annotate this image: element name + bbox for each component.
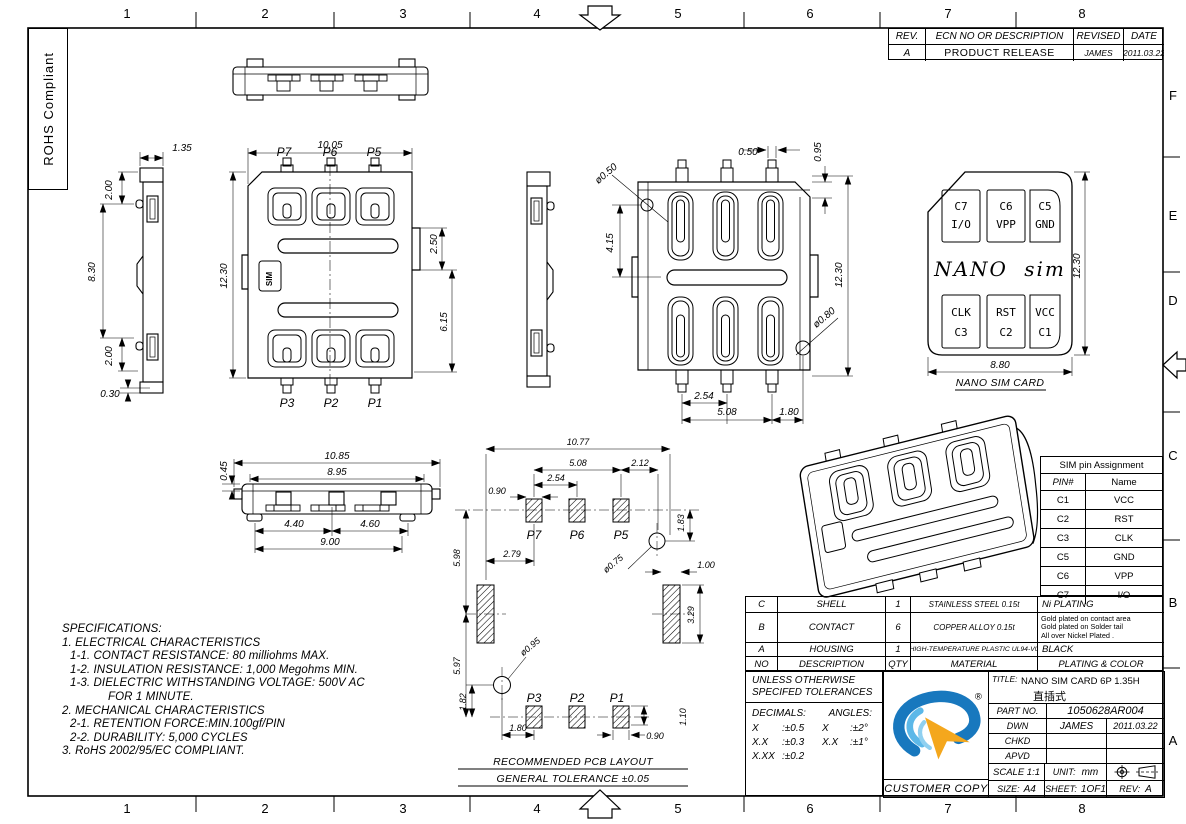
dim-pcb-2-54: 2.54 — [546, 473, 565, 483]
pin-label-p7: P7 — [277, 145, 293, 159]
sheet-value: 1OF1 — [1081, 784, 1106, 795]
dim-5-98: 5.98 — [452, 549, 462, 567]
dim-12-30-left: 12.30 — [219, 263, 230, 288]
dim-0-30: 0.30 — [100, 389, 120, 400]
dim-dia-0-95: ø0.95 — [518, 635, 543, 658]
pad-c6-name: VPP — [996, 218, 1016, 231]
zone-bot-1: 1 — [117, 801, 137, 816]
pin-c5: C5 — [1041, 548, 1086, 566]
dim-3-29: 3.29 — [686, 606, 696, 624]
pin-label-p3: P3 — [280, 396, 295, 410]
tolerance-row-2: X.X:±0.3 X.X:±1° — [746, 735, 882, 749]
dim-0-95: 0.95 — [813, 142, 824, 162]
pin-col-header: PIN# — [1041, 474, 1086, 490]
rohs-compliant-box: ROHS Compliant — [28, 28, 68, 190]
title-label: TITLE: — [992, 674, 1018, 684]
pad-c1: C1 — [1038, 326, 1051, 339]
dim-dia-0-80: ø0.80 — [811, 305, 838, 330]
pad-c5: C5 — [1038, 200, 1051, 213]
zone-letter-e: E — [1165, 208, 1181, 223]
pad-c3: C3 — [954, 326, 967, 339]
tolerance-block: UNLESS OTHERWISE SPECIFED TOLERANCES DEC… — [745, 671, 883, 796]
dim-10-77: 10.77 — [567, 437, 591, 447]
dim-dia-0-75: ø0.75 — [601, 552, 626, 575]
bom-header-material: MATERIAL — [911, 657, 1038, 672]
bom-c-plating: Ni PLATING — [1038, 597, 1164, 613]
sim-pin-assignment-table: SIM pin Assignment PIN# Name C1 VCC C2 R… — [1040, 456, 1163, 596]
pin-row-c2: C2 RST — [1041, 510, 1162, 529]
bom-header-desc: DESCRIPTION — [778, 657, 886, 672]
date-col-header: DATE — [1124, 29, 1164, 45]
sim-marking: SIM — [265, 272, 274, 287]
spec-line: 1-1. CONTACT RESISTANCE: 80 milliohms MA… — [62, 650, 462, 664]
zone-top-3: 3 — [393, 6, 413, 21]
specifications-block: SPECIFICATIONS: 1. ELECTRICAL CHARACTERI… — [62, 623, 462, 759]
pin-c3: C3 — [1041, 529, 1086, 547]
view-front — [234, 484, 440, 521]
dim-pcb-0-90a: 0.90 — [488, 486, 506, 496]
bom-a-desc: HOUSING — [778, 643, 886, 657]
bom-c-material: STAINLESS STEEL 0.15t — [911, 597, 1038, 613]
pcb-pad-p1: P1 — [610, 691, 625, 705]
pad-c5-name: GND — [1035, 218, 1055, 231]
pin-c1-name: VCC — [1086, 491, 1162, 509]
unit-cell: UNIT: mm — [1044, 763, 1107, 781]
right-edge-arrow-icon — [1163, 352, 1186, 378]
rev-cell: REV: A — [1106, 780, 1165, 798]
dim-4-40: 4.40 — [284, 519, 304, 530]
zone-top-8: 8 — [1072, 6, 1092, 21]
rev-value: A — [889, 45, 926, 61]
part-no-label: PART NO. — [988, 703, 1047, 719]
bom-a-qty: 1 — [886, 643, 911, 657]
dim-pcb-5-08: 5.08 — [569, 458, 587, 468]
zone-letter-d: D — [1165, 293, 1181, 308]
spec-line: 1-3. DIELECTRIC WITHSTANDING VOLTAGE: 50… — [62, 677, 462, 691]
dwn-date: 2011.03.22 — [1106, 718, 1165, 734]
pin-c6-name: VPP — [1086, 567, 1162, 585]
zone-letter-c: C — [1165, 448, 1181, 463]
pin-row-c1: C1 VCC — [1041, 491, 1162, 510]
title-block: ® CUSTOMER COPY TITLE: NANO SIM CARD 6P … — [883, 671, 1163, 796]
pin-c2: C2 — [1041, 510, 1086, 528]
revised-col-header: REVISED — [1074, 29, 1124, 45]
title-cell: TITLE: NANO SIM CARD 6P 1.35H 直插式 — [988, 671, 1165, 704]
dim-2-00-top: 2.00 — [104, 180, 115, 201]
pcb-pad-p2: P2 — [570, 691, 585, 705]
zone-bot-4: 4 — [527, 801, 547, 816]
view-side-left — [136, 168, 163, 393]
spec-line: 1. ELECTRICAL CHARACTERISTICS — [62, 637, 462, 651]
pin-table-title: SIM pin Assignment — [1041, 457, 1162, 474]
view-top-profile — [233, 59, 428, 100]
rev-description: PRODUCT RELEASE — [926, 45, 1074, 61]
pin-c2-name: RST — [1086, 510, 1162, 528]
bom-c-no: C — [746, 597, 778, 613]
dim-card-8-80: 8.80 — [990, 360, 1010, 371]
tolerance-title-2: SPECIFED TOLERANCES — [752, 687, 882, 699]
dim-pcb-1-80: 1.80 — [509, 723, 527, 733]
pin-label-p1: P1 — [368, 396, 383, 410]
dim-4-60: 4.60 — [360, 519, 380, 530]
rev-label: REV: — [1119, 784, 1140, 794]
pin-c6: C6 — [1041, 567, 1086, 585]
dim-5-08: 5.08 — [717, 407, 737, 418]
pin-row-c5: C5 GND — [1041, 548, 1162, 567]
bom-c-qty: 1 — [886, 597, 911, 613]
bom-c-desc: SHELL — [778, 597, 886, 613]
rev-revised-by: JAMES — [1074, 45, 1124, 61]
top-center-arrow-icon — [580, 6, 620, 30]
bom-b-material: COPPER ALLOY 0.15t — [911, 613, 1038, 643]
dim-1-80: 1.80 — [779, 407, 799, 418]
scale-cell: SCALE 1:1 — [988, 763, 1045, 781]
pad-c1-name: VCC — [1035, 306, 1055, 319]
customer-copy-cell: CUSTOMER COPY — [883, 779, 989, 798]
name-col-header: Name — [1086, 474, 1162, 490]
logo-cell: ® — [883, 671, 989, 780]
decimals-label: DECIMALS: — [752, 708, 806, 719]
rev-col-header: REV. — [889, 29, 926, 45]
drawing-title: NANO SIM CARD 6P 1.35H — [1021, 676, 1140, 687]
pin-label-p2: P2 — [324, 396, 339, 410]
zone-top-4: 4 — [527, 6, 547, 21]
zone-letter-b: B — [1165, 595, 1181, 610]
rev-date: 2011.03.22 — [1124, 45, 1164, 61]
pcb-caption-2: GENERAL TOLERANCE ±0.05 — [497, 773, 650, 785]
size-label: SIZE: — [997, 784, 1020, 794]
bom-b-plating-3: All over Nickel Plated . — [1041, 632, 1114, 641]
tolerance-row-1: X:±0.5 X:±2° — [746, 721, 882, 735]
bom-header-no: NO — [746, 657, 778, 672]
view-top-main-dims: P7 P6 P5 P3 P2 P1 SIM 10.05 12.30 2.50 6… — [219, 140, 457, 410]
zone-top-5: 5 — [668, 6, 688, 21]
nano-sim-brand: NANO sim — [933, 257, 1066, 281]
projection-cell — [1106, 763, 1165, 781]
pin-c1: C1 — [1041, 491, 1086, 509]
pcb-caption-1: RECOMMENDED PCB LAYOUT — [493, 756, 654, 768]
bom-a-no: A — [746, 643, 778, 657]
pin-row-c6: C6 VPP — [1041, 567, 1162, 586]
dim-8-30: 8.30 — [87, 262, 98, 282]
dwn-label: DWN — [988, 718, 1047, 734]
dim-8-95: 8.95 — [327, 467, 347, 478]
view-back — [612, 160, 838, 392]
zone-bot-3: 3 — [393, 801, 413, 816]
dim-12-30-right: 12.30 — [834, 262, 845, 287]
bom-b-plating: Gold plated on contact area Gold plated … — [1038, 613, 1164, 643]
pad-c2-name: RST — [996, 306, 1016, 319]
tolerance-row-3: X.XX:±0.2 — [746, 749, 882, 763]
dwn-value: JAMES — [1046, 718, 1107, 734]
zone-top-6: 6 — [800, 6, 820, 21]
dim-9-00: 9.00 — [320, 537, 340, 548]
apvd-date — [1106, 748, 1165, 764]
dim-2-54: 2.54 — [693, 391, 714, 402]
chkd-value — [1046, 733, 1107, 749]
bom-a-plating: BLACK — [1038, 643, 1164, 657]
dim-pcb-0-90b: 0.90 — [646, 731, 664, 741]
dim-card-12-30: 12.30 — [1072, 253, 1083, 278]
pcb-pad-p6: P6 — [570, 528, 585, 542]
size-value: A4 — [1024, 784, 1036, 795]
spec-line: 1-2. INSULATION RESISTANCE: 1,000 Megohm… — [62, 664, 462, 678]
pin-row-c3: C3 CLK — [1041, 529, 1162, 548]
bom-b-no: B — [746, 613, 778, 643]
company-logo-icon: ® — [886, 683, 986, 769]
sheet-label: SHEET: — [1045, 784, 1077, 794]
projection-symbol-icon — [1113, 765, 1159, 779]
tolerance-title-1: UNLESS OTHERWISE — [752, 675, 882, 687]
dim-1-35: 1.35 — [172, 143, 192, 154]
bom-header-qty: QTY — [886, 657, 911, 672]
pcb-pad-p5: P5 — [614, 528, 629, 542]
dim-10-85: 10.85 — [324, 451, 349, 462]
zone-letter-a: A — [1165, 733, 1181, 748]
zone-letter-f: F — [1165, 88, 1181, 103]
pad-c7-name: I/O — [951, 218, 971, 231]
ecn-col-header: ECN NO OR DESCRIPTION — [926, 29, 1074, 45]
dim-4-15: 4.15 — [605, 233, 616, 253]
unit-label: UNIT: — [1053, 767, 1076, 777]
specs-title: SPECIFICATIONS: — [62, 623, 462, 637]
pin-c5-name: GND — [1086, 548, 1162, 566]
zone-bot-5: 5 — [668, 801, 688, 816]
chkd-date — [1106, 733, 1165, 749]
pad-c6: C6 — [999, 200, 1012, 213]
part-no-value: 1050628AR004 — [1046, 703, 1165, 719]
dim-2-12: 2.12 — [630, 458, 649, 468]
angles-label: ANGLES: — [829, 708, 872, 719]
dim-2-79: 2.79 — [502, 549, 521, 559]
nano-card-caption: NANO SIM CARD — [956, 377, 1045, 389]
bottom-center-arrow-icon — [580, 790, 620, 818]
rev-value-tb: A — [1145, 784, 1152, 795]
apvd-label: APVD — [988, 748, 1047, 764]
view-pcb-layout: 10.77 5.08 2.12 2.54 0.90 2.79 5.98 5.97… — [452, 437, 715, 786]
view-isometric — [798, 404, 1047, 607]
pcb-pad-p7: P7 — [527, 528, 543, 542]
spec-line: FOR 1 MINUTE. — [62, 691, 462, 705]
dim-1-10: 1.10 — [678, 708, 688, 726]
pin-label-p5: P5 — [367, 145, 382, 159]
dim-6-15: 6.15 — [439, 312, 450, 332]
revision-table: REV. ECN NO OR DESCRIPTION REVISED DATE … — [888, 28, 1163, 60]
sheet-cell: SHEET: 1OF1 — [1044, 780, 1107, 798]
spec-line: 2. MECHANICAL CHARACTERISTICS — [62, 705, 462, 719]
pad-c3-name: CLK — [951, 306, 971, 319]
dim-2-50: 2.50 — [429, 234, 440, 255]
bom-header-plating: PLATING & COLOR — [1038, 657, 1164, 672]
zone-bot-7: 7 — [938, 801, 958, 816]
bom-b-desc: CONTACT — [778, 613, 886, 643]
zone-top-7: 7 — [938, 6, 958, 21]
bom-b-qty: 6 — [886, 613, 911, 643]
chkd-label: CHKD — [988, 733, 1047, 749]
zone-top-2: 2 — [255, 6, 275, 21]
spec-line: 2-2. DURABILITY: 5,000 CYCLES — [62, 732, 462, 746]
dim-1-00: 1.00 — [697, 560, 715, 570]
zone-bot-6: 6 — [800, 801, 820, 816]
bom-a-material: HIGH-TEMPERATURE PLASTIC UL94-V0 — [911, 643, 1038, 657]
view-nano-card-text: C7 I/O C6 VPP C5 GND CLK C3 RST C2 VCC C… — [928, 172, 1090, 390]
zone-top-1: 1 — [117, 6, 137, 21]
dim-0-45: 0.45 — [219, 461, 230, 481]
pad-c2: C2 — [999, 326, 1012, 339]
spec-line: 2-1. RETENTION FORCE:MIN.100gf/PIN — [62, 718, 462, 732]
registered-mark: ® — [975, 691, 982, 702]
view-side-middle — [527, 172, 554, 387]
zone-bot-2: 2 — [255, 801, 275, 816]
size-cell: SIZE: A4 — [988, 780, 1045, 798]
dim-dia-0-50: ø0.50 — [593, 161, 620, 186]
pad-c7: C7 — [954, 200, 967, 213]
pcb-pad-p3: P3 — [527, 691, 542, 705]
bom-table: C SHELL 1 STAINLESS STEEL 0.15t Ni PLATI… — [745, 596, 1163, 671]
rohs-compliant-label: ROHS Compliant — [41, 52, 56, 166]
apvd-value — [1046, 748, 1107, 764]
dim-1-83: 1.83 — [676, 514, 686, 532]
dim-2-00-bot: 2.00 — [104, 346, 115, 367]
dim-10-05: 10.05 — [317, 140, 342, 151]
zone-bot-8: 8 — [1072, 801, 1092, 816]
spec-line: 3. RoHS 2002/95/EC COMPLIANT. — [62, 745, 462, 759]
dim-0-50: 0.50 — [738, 147, 758, 158]
unit-value: mm — [1082, 767, 1099, 778]
drawing-title-cn: 直插式 — [1033, 688, 1066, 704]
pin-c3-name: CLK — [1086, 529, 1162, 547]
drawing-sheet: 1.35 2.00 8.30 2.00 0.30 — [0, 0, 1186, 824]
